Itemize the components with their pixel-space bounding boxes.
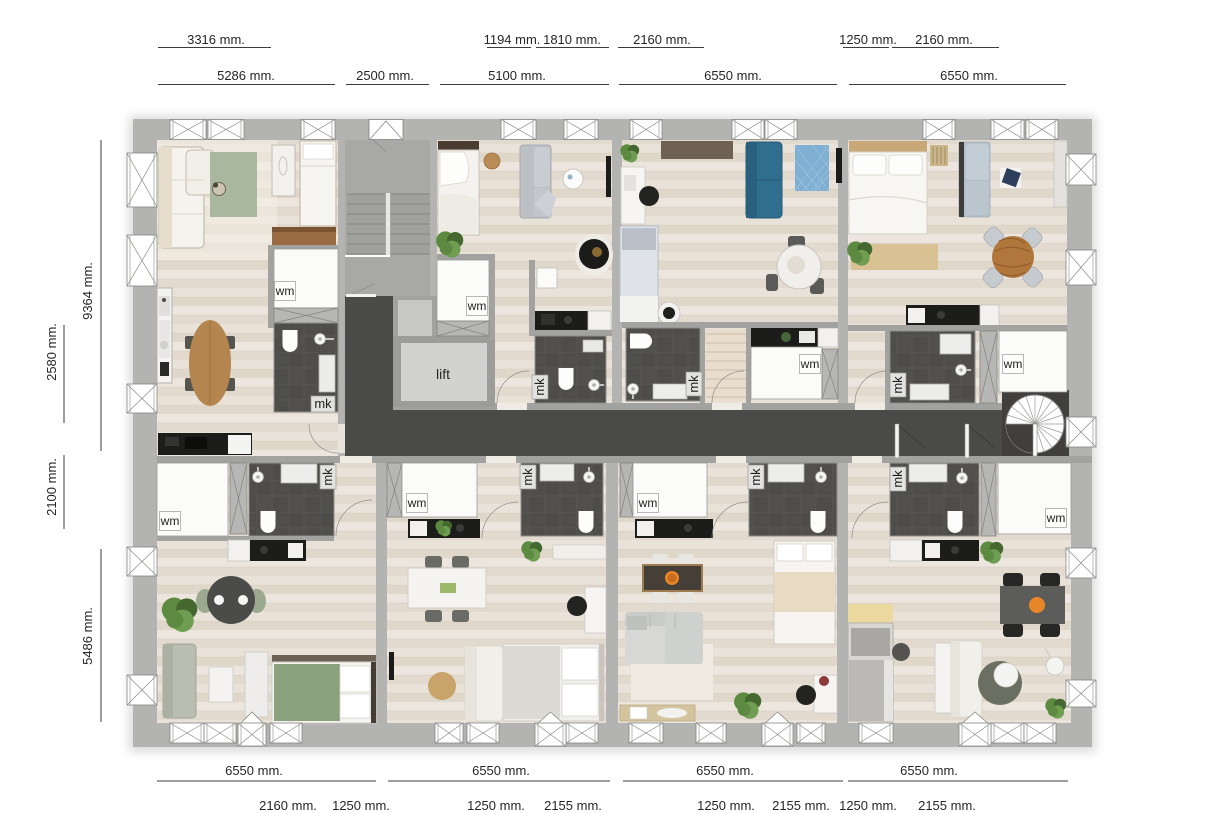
svg-text:2580 mm.: 2580 mm.: [44, 323, 59, 381]
svg-text:wm: wm: [638, 496, 658, 510]
svg-text:wm: wm: [407, 496, 427, 510]
svg-text:1194 mm.: 1194 mm.: [484, 32, 541, 47]
svg-text:1250 mm.: 1250 mm.: [839, 32, 897, 47]
svg-text:2155 mm.: 2155 mm.: [772, 798, 830, 813]
svg-text:mk: mk: [890, 376, 905, 394]
svg-text:wm: wm: [275, 284, 295, 298]
svg-text:3316 mm.: 3316 mm.: [187, 32, 245, 47]
svg-text:5100 mm.: 5100 mm.: [488, 68, 546, 83]
svg-text:wm: wm: [1003, 357, 1023, 371]
svg-text:6550 mm.: 6550 mm.: [472, 763, 530, 778]
svg-text:wm: wm: [160, 514, 180, 528]
svg-text:1250 mm.: 1250 mm.: [839, 798, 897, 813]
svg-text:6550 mm.: 6550 mm.: [225, 763, 283, 778]
svg-text:6550 mm.: 6550 mm.: [940, 68, 998, 83]
svg-text:2500 mm.: 2500 mm.: [356, 68, 414, 83]
svg-text:mk: mk: [890, 470, 905, 488]
svg-text:mk: mk: [532, 378, 547, 396]
svg-text:1250 mm.: 1250 mm.: [332, 798, 390, 813]
svg-text:wm: wm: [800, 357, 820, 371]
svg-text:mk: mk: [314, 396, 332, 411]
svg-text:5486 mm.: 5486 mm.: [80, 607, 95, 665]
svg-text:6550 mm.: 6550 mm.: [704, 68, 762, 83]
svg-text:mk: mk: [520, 468, 535, 486]
svg-text:mk: mk: [748, 468, 763, 486]
svg-text:2160 mm.: 2160 mm.: [915, 32, 973, 47]
svg-text:6550 mm.: 6550 mm.: [900, 763, 958, 778]
svg-text:mk: mk: [320, 468, 335, 486]
svg-text:5286 mm.: 5286 mm.: [217, 68, 275, 83]
svg-text:1250 mm.: 1250 mm.: [697, 798, 755, 813]
svg-text:2160 mm.: 2160 mm.: [633, 32, 691, 47]
svg-text:2155 mm.: 2155 mm.: [544, 798, 602, 813]
svg-text:2155 mm.: 2155 mm.: [918, 798, 976, 813]
svg-text:mk: mk: [686, 375, 701, 393]
svg-text:wm: wm: [467, 299, 487, 313]
svg-text:1810 mm.: 1810 mm.: [543, 32, 601, 47]
svg-text:2100 mm.: 2100 mm.: [44, 458, 59, 516]
svg-text:9364 mm.: 9364 mm.: [80, 262, 95, 320]
svg-text:6550 mm.: 6550 mm.: [696, 763, 754, 778]
svg-text:1250 mm.: 1250 mm.: [467, 798, 525, 813]
svg-text:wm: wm: [1046, 511, 1066, 525]
svg-text:2160 mm.: 2160 mm.: [259, 798, 317, 813]
svg-text:lift: lift: [436, 366, 450, 382]
